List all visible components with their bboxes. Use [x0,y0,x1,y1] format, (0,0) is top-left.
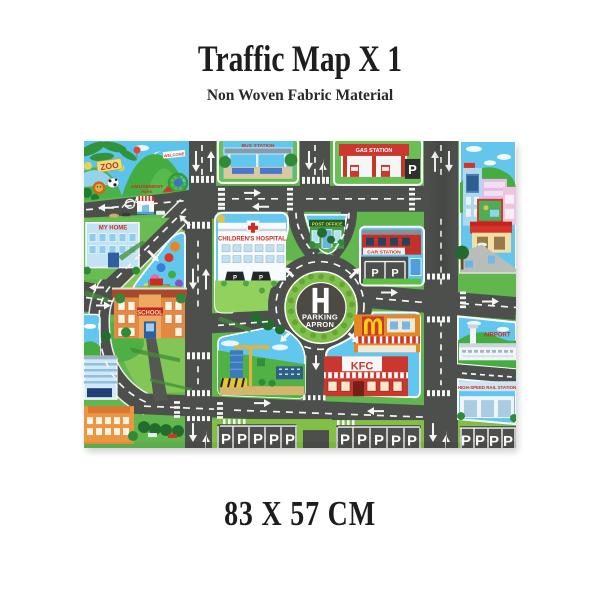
svg-text:CHILDREN'S HOSPITAL: CHILDREN'S HOSPITAL [218,237,286,243]
svg-text:POST OFFICE: POST OFFICE [312,222,343,227]
svg-text:KFC: KFC [351,360,374,372]
svg-text:HIGH-SPEED RAIL STATION: HIGH-SPEED RAIL STATION [458,385,516,390]
svg-text:CAR STATION: CAR STATION [367,250,401,256]
svg-text:AIRPORT: AIRPORT [484,332,511,338]
svg-text:SCHOOL: SCHOOL [137,310,163,316]
svg-text:PARK: PARK [141,189,152,194]
svg-text:GAS STATION: GAS STATION [356,148,393,154]
svg-text:P: P [371,268,378,280]
svg-text:MY HOME: MY HOME [99,226,128,232]
svg-text:P: P [391,268,398,280]
svg-text:P: P [259,276,263,282]
svg-text:P: P [233,276,237,282]
svg-text:APRON: APRON [306,320,335,329]
svg-text:P: P [408,162,417,177]
